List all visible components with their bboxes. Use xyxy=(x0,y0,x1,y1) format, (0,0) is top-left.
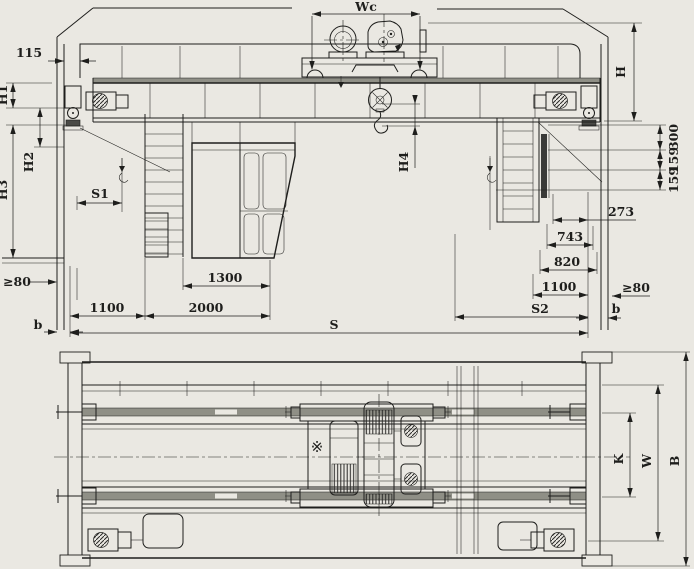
end-carriage-left xyxy=(68,356,82,564)
trolley-rail-plan xyxy=(82,408,586,416)
end-truck-left xyxy=(65,86,128,119)
operator-cabin xyxy=(192,122,295,258)
dim-label-820: 820 xyxy=(554,254,580,269)
dim-label-ge80-right: ≥80 xyxy=(622,280,650,295)
trolley-rail xyxy=(93,78,600,83)
dim-label-s1: S1 xyxy=(91,186,109,201)
end-truck-right xyxy=(534,86,597,119)
plan-dimensions: K W B xyxy=(588,352,690,566)
hook-icon xyxy=(374,112,387,133)
motor-icon xyxy=(553,94,568,109)
dim-label-h4: H4 xyxy=(396,151,411,172)
trolley-handle xyxy=(352,65,398,72)
dim-label-159b: 159 xyxy=(666,167,681,193)
dim-label-1300: 1300 xyxy=(208,270,243,285)
cabin-window xyxy=(244,153,259,209)
dim-label-300: 300 xyxy=(666,124,681,150)
handrail xyxy=(80,44,571,78)
control-panel-box xyxy=(143,514,183,548)
dim-label-h3: H3 xyxy=(0,180,10,201)
dim-label-w: W xyxy=(639,453,654,469)
dim-label-s: S xyxy=(329,317,338,332)
cabin-window xyxy=(244,214,259,254)
access-ladder-left xyxy=(145,114,183,257)
plan-view: ※ K W B xyxy=(54,352,690,566)
crab-trolley xyxy=(302,14,437,78)
dim-label-h1: H1 xyxy=(0,85,10,106)
dim-label-h2: H2 xyxy=(21,152,36,173)
dim-label-273: 273 xyxy=(608,204,634,219)
dim-label-s2: S2 xyxy=(531,301,549,316)
crane-drawing: Wc 115 H1 H2 H3 S1 H4 H xyxy=(0,0,694,569)
drawing-sheet: Wc 115 H1 H2 H3 S1 H4 H xyxy=(0,0,694,569)
dim-label-1100-left: 1100 xyxy=(90,300,125,315)
motor-icon xyxy=(93,94,108,109)
runway-rail-left xyxy=(66,120,80,126)
dim-label-b-left: b xyxy=(34,317,43,332)
drum-position-mark: ※ xyxy=(311,438,324,456)
hook-icon xyxy=(487,173,496,182)
dim-label-b-right: b xyxy=(612,301,621,316)
dim-label-wc: Wc xyxy=(354,0,377,14)
cabin-window xyxy=(263,153,286,209)
dim-label-1100-right: 1100 xyxy=(542,279,577,294)
elevation-dimensions: Wc 115 H1 H2 H3 S1 H4 H xyxy=(0,0,681,338)
cabin-window xyxy=(263,214,284,254)
elevation-view: Wc 115 H1 H2 H3 S1 H4 H xyxy=(0,0,681,338)
dim-label-b: B xyxy=(667,456,682,467)
dim-label-ge80-left: ≥80 xyxy=(3,274,31,289)
lifting-point-marks xyxy=(119,156,496,230)
end-carriage-right xyxy=(586,356,600,564)
hook-icon xyxy=(119,173,128,182)
dim-label-115: 115 xyxy=(16,45,42,60)
dim-label-2000: 2000 xyxy=(189,300,224,315)
dim-label-743: 743 xyxy=(557,229,583,244)
cross-shaft xyxy=(457,366,478,554)
access-ladder-right xyxy=(497,118,549,222)
dim-label-k: K xyxy=(611,452,626,464)
dim-label-h: H xyxy=(613,66,628,78)
hook-assembly xyxy=(338,76,392,133)
runway-structure xyxy=(2,8,608,330)
bridge-drive xyxy=(88,514,574,551)
